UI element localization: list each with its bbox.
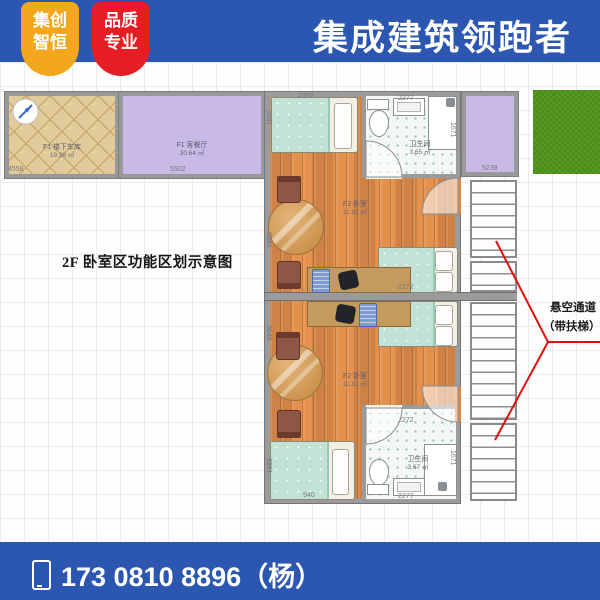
compass-icon (12, 98, 39, 125)
dim-living-width: 5502 (170, 166, 186, 173)
bathroom-bottom-area: 3.67 ㎡ (383, 464, 453, 473)
bathroom-bottom-name: 卫生间 (408, 456, 429, 463)
walkway-segment-1 (470, 180, 517, 258)
office-chair-top (312, 269, 330, 293)
door-gap-bath-top (366, 173, 402, 179)
page: { "header": { "badge_left": { "line1": "… (0, 0, 600, 600)
dim-bath-bottom-height: 1671 (449, 450, 456, 466)
bedroom-bottom-area: 11.81 ㎡ (315, 381, 395, 390)
dim-bath-top-width: 2277 (398, 95, 414, 102)
showerhead-icon-top (446, 98, 455, 107)
dim-garage-width: 4558 (8, 166, 24, 173)
brand-badge-yellow-line2: 智恒 (33, 33, 67, 52)
bedroom-top-area: 11.81 ㎡ (315, 209, 395, 218)
office-chair-bottom (359, 303, 377, 327)
bedroom-top-name: F2 卧室 (343, 201, 367, 208)
chair-4 (277, 410, 301, 438)
bedroom-top-label: F2 卧室 11.81 ㎡ (315, 200, 395, 218)
plan-caption: 2F 卧室区功能区划示意图 (62, 251, 233, 272)
brand-badge-yellow-line1: 集创 (33, 11, 67, 30)
header-title: 集成建筑领跑者 (295, 10, 590, 61)
room-garage-name: F1 楼下车库 (43, 144, 81, 151)
brand-badge-red-line2: 专业 (104, 33, 138, 52)
walkway-annotation-line2: （带扶梯） (543, 321, 600, 333)
dim-terrace-width: 5238 (482, 165, 498, 172)
chair-1 (277, 176, 301, 203)
brand-badge-red: 品质 专业 (92, 2, 150, 76)
bathroom-top-area: 3.65 ㎡ (385, 149, 455, 158)
phone-icon (32, 560, 51, 590)
walkway-segment-3 (470, 302, 517, 420)
room-living-label: F1 客餐厅 30.64 ㎡ (152, 141, 232, 159)
showerhead-icon-bottom (438, 482, 447, 491)
door-gap-right-top (455, 179, 461, 214)
dim-wall-left-1: 3391 (265, 110, 272, 126)
dim-wall-left-4: 3391 (265, 458, 272, 474)
divider-wall-stub (460, 292, 517, 301)
dim-wall-left-2: 3046 (265, 232, 272, 248)
dim-mid-width: 2272 (398, 284, 414, 291)
bedroom-bottom-name: F2 卧室 (343, 373, 367, 380)
bathroom-bottom-label: 卫生间 3.67 ㎡ (383, 455, 453, 473)
dim-bed-bottom-width: 940 (303, 492, 315, 499)
dim-wall-left-3: 3046 (265, 325, 272, 341)
room-living (119, 92, 265, 178)
door-gap-bath-bottom (366, 405, 402, 411)
bathroom-top-label: 卫生间 3.65 ㎡ (385, 140, 455, 158)
chair-2 (277, 261, 301, 289)
grass-patch (533, 90, 600, 174)
walkway-annotation-line1: 悬空通道 (543, 299, 600, 318)
room-living-area: 30.64 ㎡ (152, 150, 232, 159)
dim-bath-top-height: 1671 (449, 122, 456, 138)
brand-badge-yellow: 集创 智恒 (21, 2, 79, 76)
room-garage-label: F1 楼下车库 19.38 ㎡ (22, 143, 102, 161)
walkway-segment-2 (470, 261, 517, 292)
bathroom-top-name: 卫生间 (410, 141, 431, 148)
walkway-segment-4 (470, 423, 517, 501)
toilet-tank-top (367, 99, 389, 110)
room-garage-area: 19.38 ㎡ (22, 152, 102, 161)
walkway-annotation: 悬空通道 （带扶梯） (543, 299, 600, 337)
room-living-name: F1 客餐厅 (176, 142, 207, 149)
room-terrace (462, 92, 518, 176)
toilet-tank-bottom (367, 484, 389, 495)
brand-badge-red-line1: 品质 (104, 11, 138, 30)
dim-bath-bottom-width-2: 2277 (398, 493, 414, 500)
chair-3 (276, 332, 300, 360)
phone-number: 173 0810 8896（杨） (61, 555, 322, 594)
bed-top-left (271, 97, 358, 153)
dim-bed-top-width: 2350 (298, 93, 314, 100)
divider-wall (265, 292, 460, 301)
door-gap-right-bottom (455, 387, 461, 422)
laptop-bottom (335, 303, 357, 324)
bedroom-bottom-label: F2 卧室 11.81 ㎡ (315, 372, 395, 390)
dim-bath-bottom-width-1: 2272 (398, 417, 414, 424)
phone-row: 173 0810 8896（杨） (32, 555, 322, 594)
